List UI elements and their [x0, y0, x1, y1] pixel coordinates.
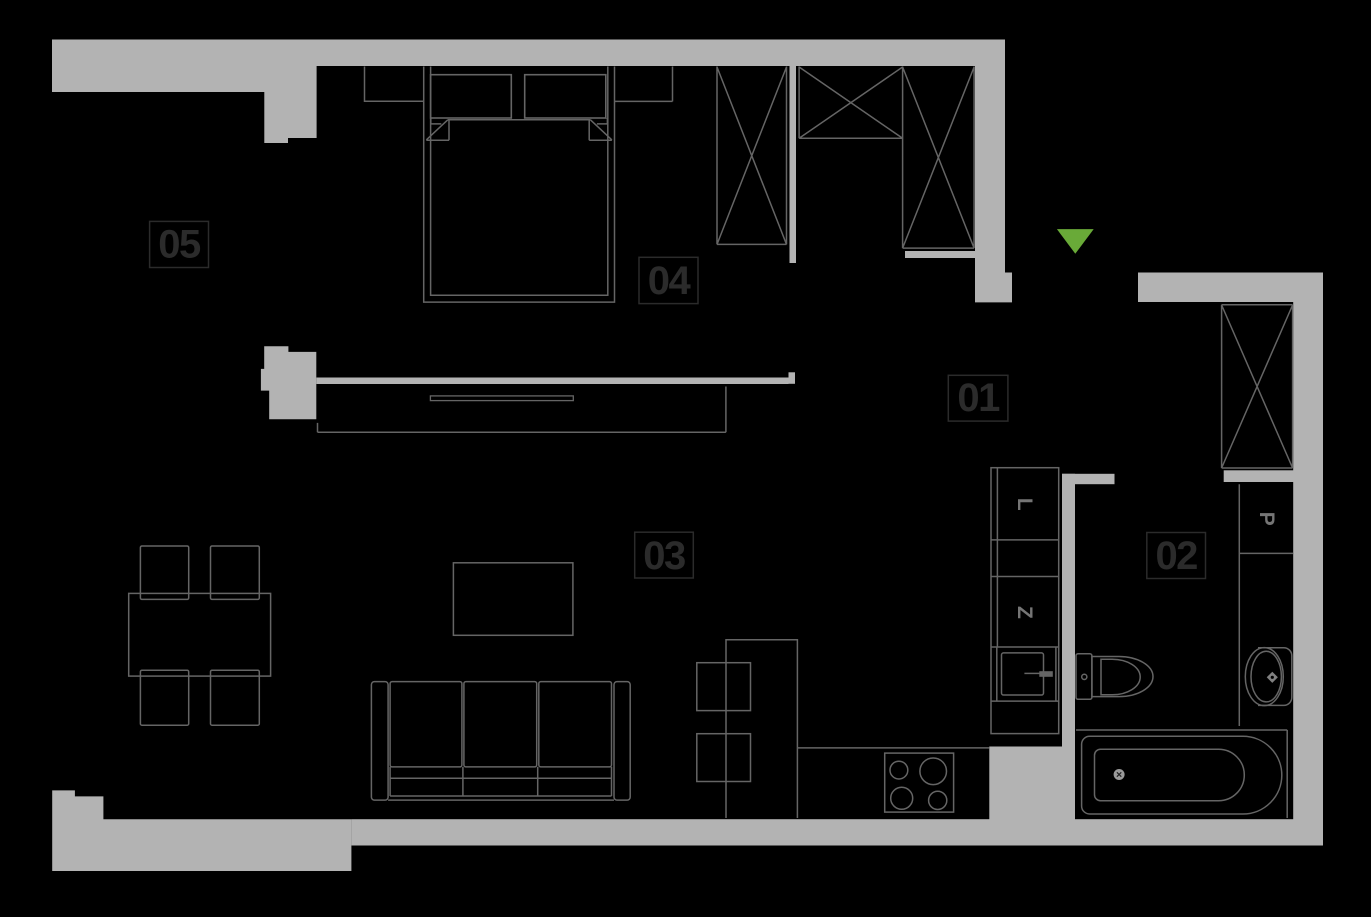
svg-text:04: 04 [648, 259, 692, 303]
svg-text:Z: Z [1013, 606, 1036, 619]
svg-text:03: 03 [643, 534, 685, 578]
svg-text:02: 02 [1155, 534, 1197, 578]
svg-text:L: L [1013, 498, 1036, 511]
svg-text:P: P [1255, 512, 1278, 526]
svg-text:05: 05 [158, 222, 201, 266]
svg-text:01: 01 [957, 376, 1000, 420]
